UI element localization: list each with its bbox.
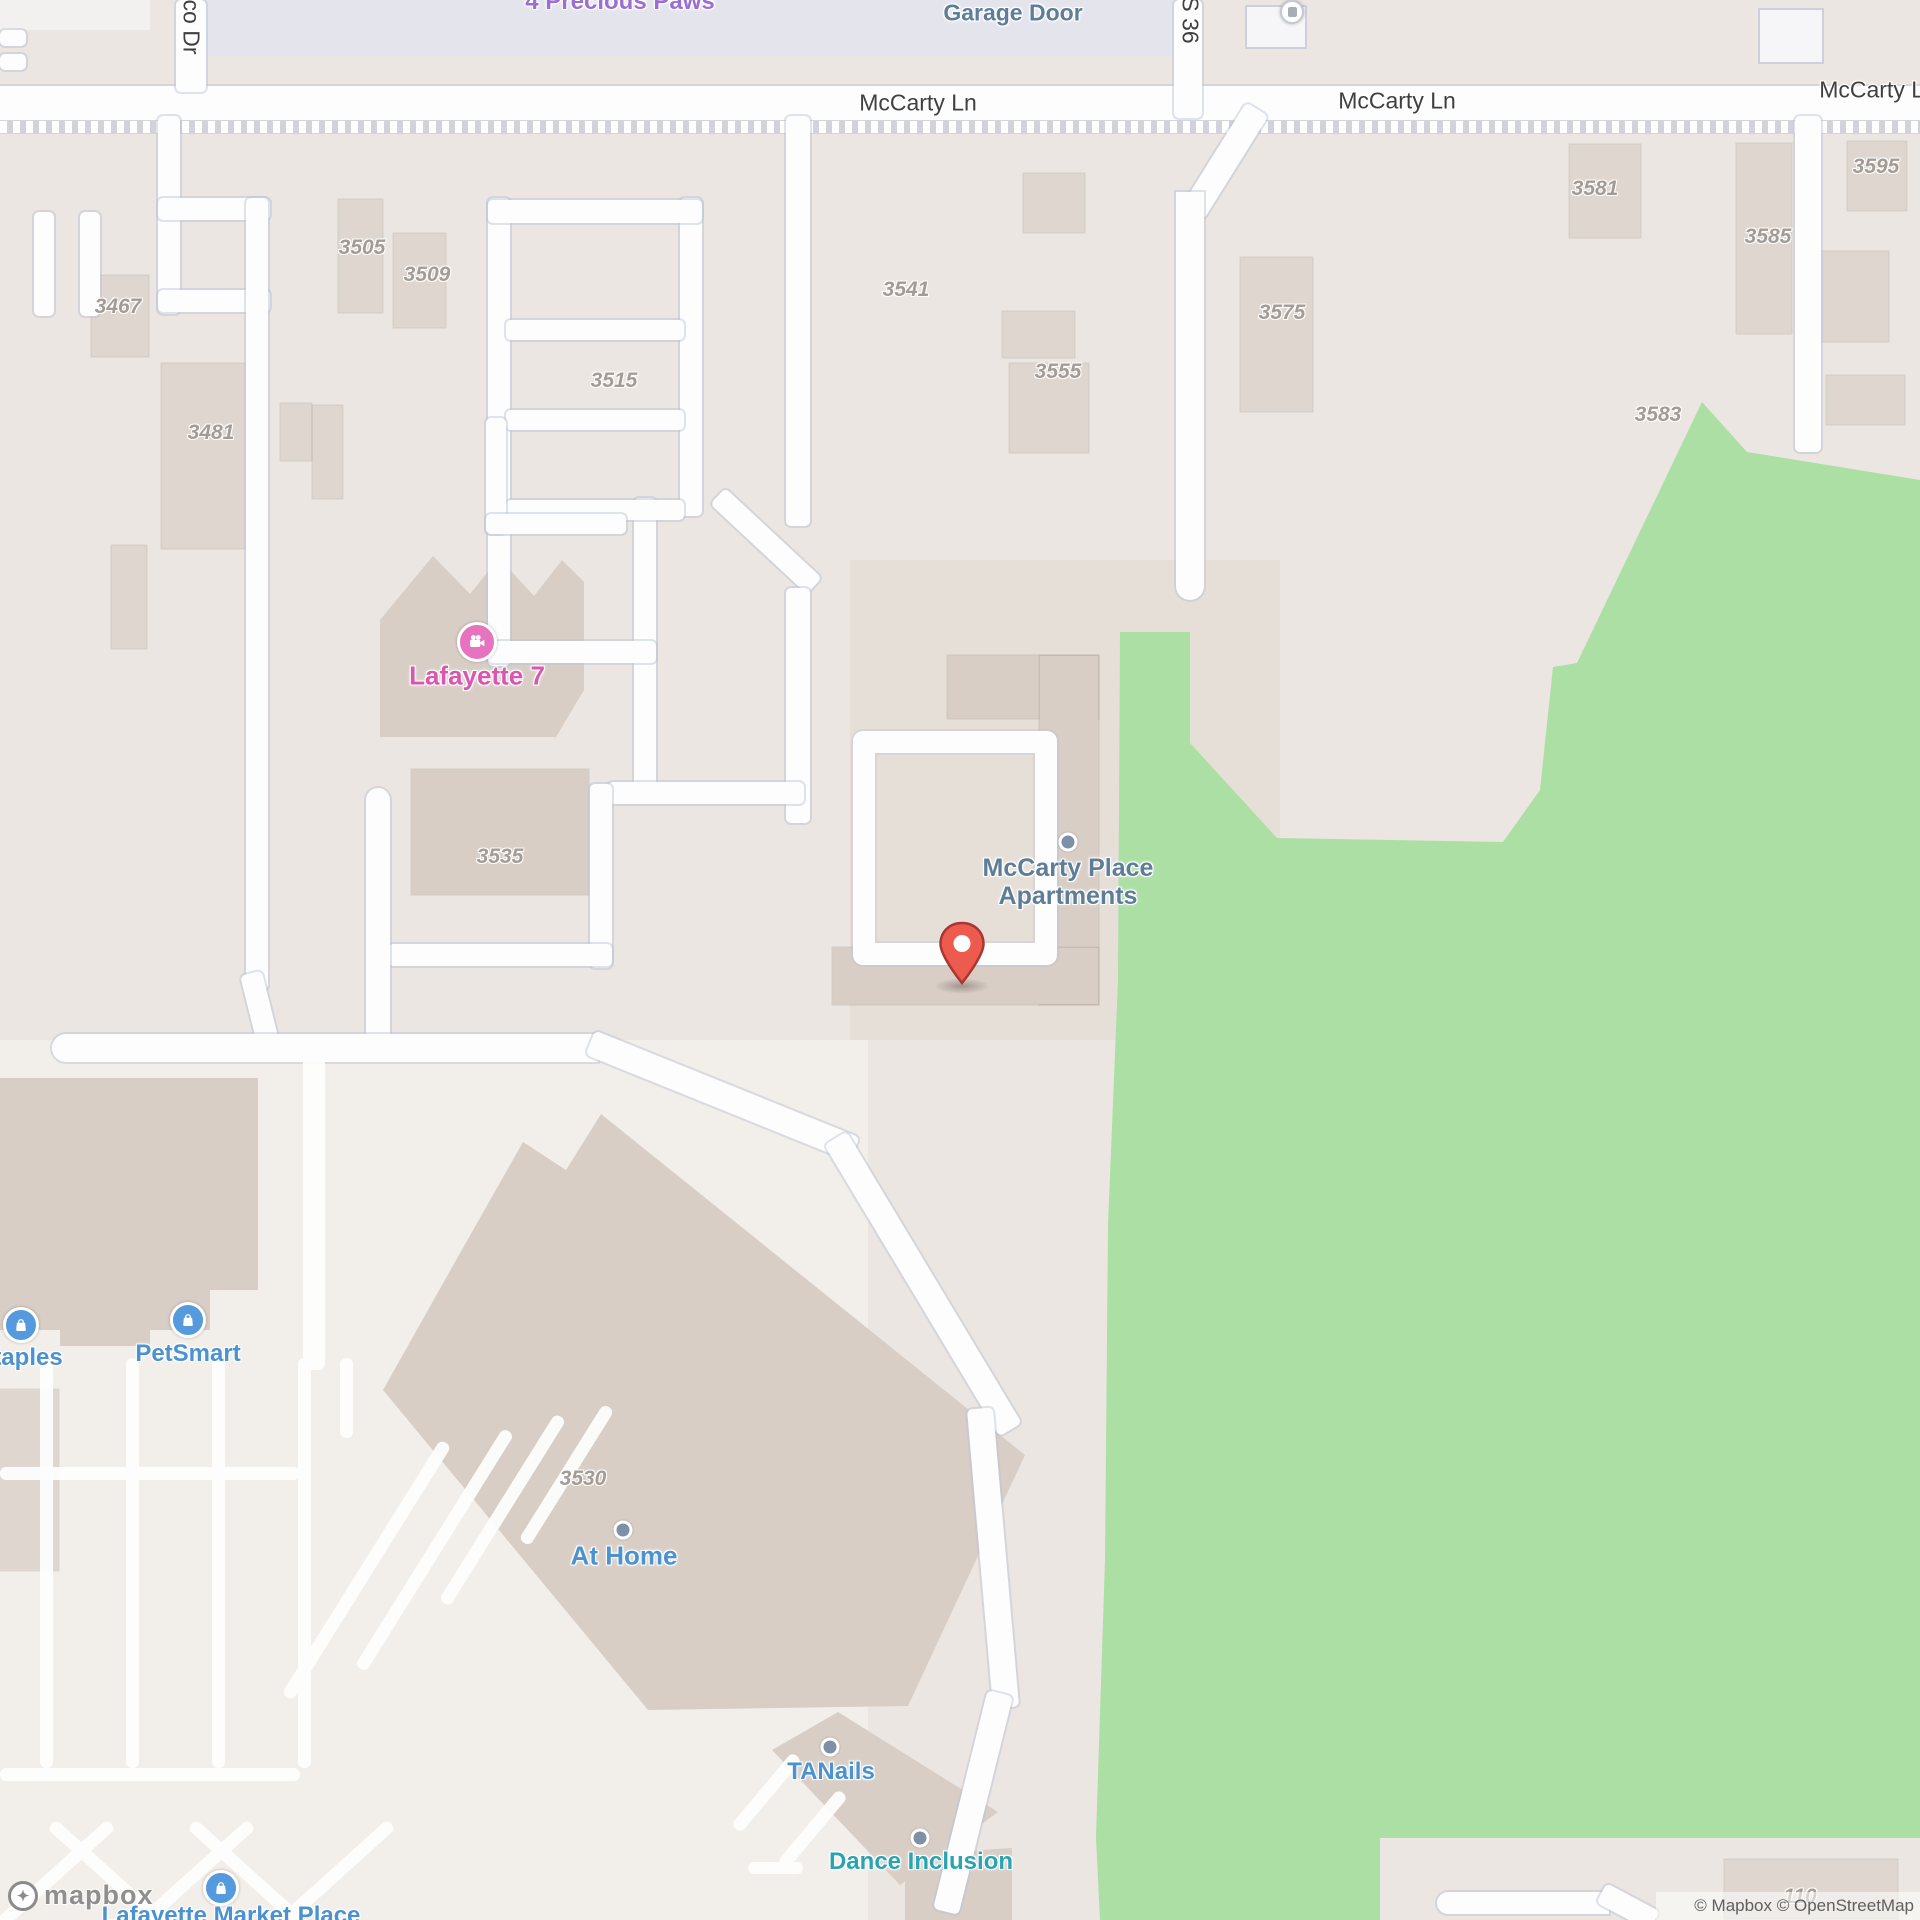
- street-name-label: McCarty Ln: [1338, 88, 1456, 115]
- street-name-label: S 36: [1177, 0, 1204, 44]
- building: [1003, 312, 1074, 357]
- road: [388, 944, 612, 966]
- poi-lafayette-7[interactable]: Lafayette 7: [409, 661, 545, 692]
- parking-line: [748, 1862, 803, 1874]
- house-number-label: 3481: [188, 421, 235, 445]
- railroad-track: [0, 120, 1920, 134]
- poi-dot[interactable]: [1059, 833, 1078, 852]
- building: [162, 364, 246, 548]
- poi-label-line: Apartments: [983, 882, 1154, 910]
- house-number-label: 3515: [591, 369, 638, 393]
- shopping-bag-icon[interactable]: [3, 1307, 39, 1343]
- street-name-label: McCarty Ln: [1819, 77, 1920, 104]
- house-number-label: 3581: [1572, 177, 1619, 201]
- poi-dot[interactable]: [614, 1521, 633, 1540]
- street-name-label: McCarty Ln: [859, 90, 977, 117]
- building-outlined: [1758, 8, 1824, 64]
- house-number-label: 3505: [339, 236, 386, 260]
- poi-at-home[interactable]: At Home: [571, 1541, 678, 1572]
- road: [246, 198, 268, 990]
- building: [1024, 174, 1084, 232]
- mapbox-logo-icon: ✦: [8, 1881, 38, 1911]
- road-s36th: [1176, 192, 1204, 600]
- cinema-icon[interactable]: [457, 622, 497, 662]
- parking-line: [126, 1358, 139, 1768]
- road: [1795, 116, 1821, 452]
- street-name-label: co Dr: [178, 0, 205, 54]
- road: [1437, 1892, 1609, 1914]
- house-number-label: 3555: [1035, 360, 1082, 384]
- building: [1827, 376, 1904, 424]
- road: [366, 788, 390, 1048]
- poi-dot[interactable]: [911, 1829, 930, 1848]
- house-number-label: 3583: [1635, 403, 1682, 427]
- map-canvas[interactable]: McCarty LnMcCarty LnMcCarty Lnco DrS 36 …: [0, 0, 1920, 1920]
- road: [488, 200, 702, 223]
- road: [0, 54, 26, 70]
- poi-dance-inclusion[interactable]: Dance Inclusion: [829, 1848, 1013, 1876]
- poi-tanails[interactable]: TANails: [787, 1758, 875, 1786]
- poi-dot[interactable]: [821, 1738, 840, 1757]
- road: [786, 116, 810, 526]
- shopping-bag-icon[interactable]: [170, 1302, 206, 1338]
- building: [281, 404, 311, 460]
- road: [680, 198, 702, 516]
- road: [52, 1034, 598, 1062]
- house-number-label: 3541: [883, 278, 930, 302]
- poi-4-precious-paws[interactable]: 4 Precious Paws: [525, 0, 714, 16]
- poi-label-line: McCarty Place: [983, 854, 1154, 882]
- road: [590, 784, 612, 968]
- parking-line: [340, 1358, 353, 1438]
- house-number-label: 3535: [477, 845, 524, 869]
- house-number-label: 3467: [95, 295, 142, 319]
- building: [1241, 258, 1312, 411]
- building: [1812, 252, 1888, 341]
- parking-line: [298, 1358, 311, 1768]
- road: [34, 212, 54, 316]
- parking-line: [212, 1358, 225, 1768]
- mapbox-logo[interactable]: ✦ mapbox: [8, 1880, 154, 1911]
- road: [506, 320, 684, 340]
- location-pin-marker[interactable]: [937, 921, 987, 989]
- parking-line: [303, 1050, 325, 1370]
- building: [313, 406, 342, 498]
- road: [486, 514, 626, 534]
- poi-staples[interactable]: taples: [0, 1344, 63, 1372]
- parking-line: [0, 1467, 300, 1480]
- house-number-label: 3530: [560, 1467, 607, 1491]
- parking-line: [0, 1768, 300, 1781]
- parking-line: [40, 1358, 53, 1768]
- poi-petsmart[interactable]: PetSmart: [135, 1340, 240, 1368]
- house-number-label: 3595: [1853, 155, 1900, 179]
- map-attribution[interactable]: © Mapbox © OpenStreetMap: [1656, 1892, 1920, 1920]
- road: [608, 782, 804, 804]
- house-number-label: 3585: [1745, 225, 1792, 249]
- mapbox-logo-text: mapbox: [44, 1880, 154, 1911]
- building: [112, 546, 146, 648]
- road: [506, 410, 684, 430]
- shopping-bag-icon[interactable]: [203, 1870, 239, 1906]
- garage-door-icon[interactable]: [1280, 0, 1304, 24]
- poi-mccarty-place-apartments[interactable]: McCarty Place Apartments: [983, 854, 1154, 910]
- house-number-label: 3575: [1259, 301, 1306, 325]
- house-number-label: 3509: [404, 263, 451, 287]
- poi-garage-door[interactable]: Garage Door: [943, 0, 1082, 27]
- building-3535: [412, 770, 588, 894]
- road: [0, 30, 26, 46]
